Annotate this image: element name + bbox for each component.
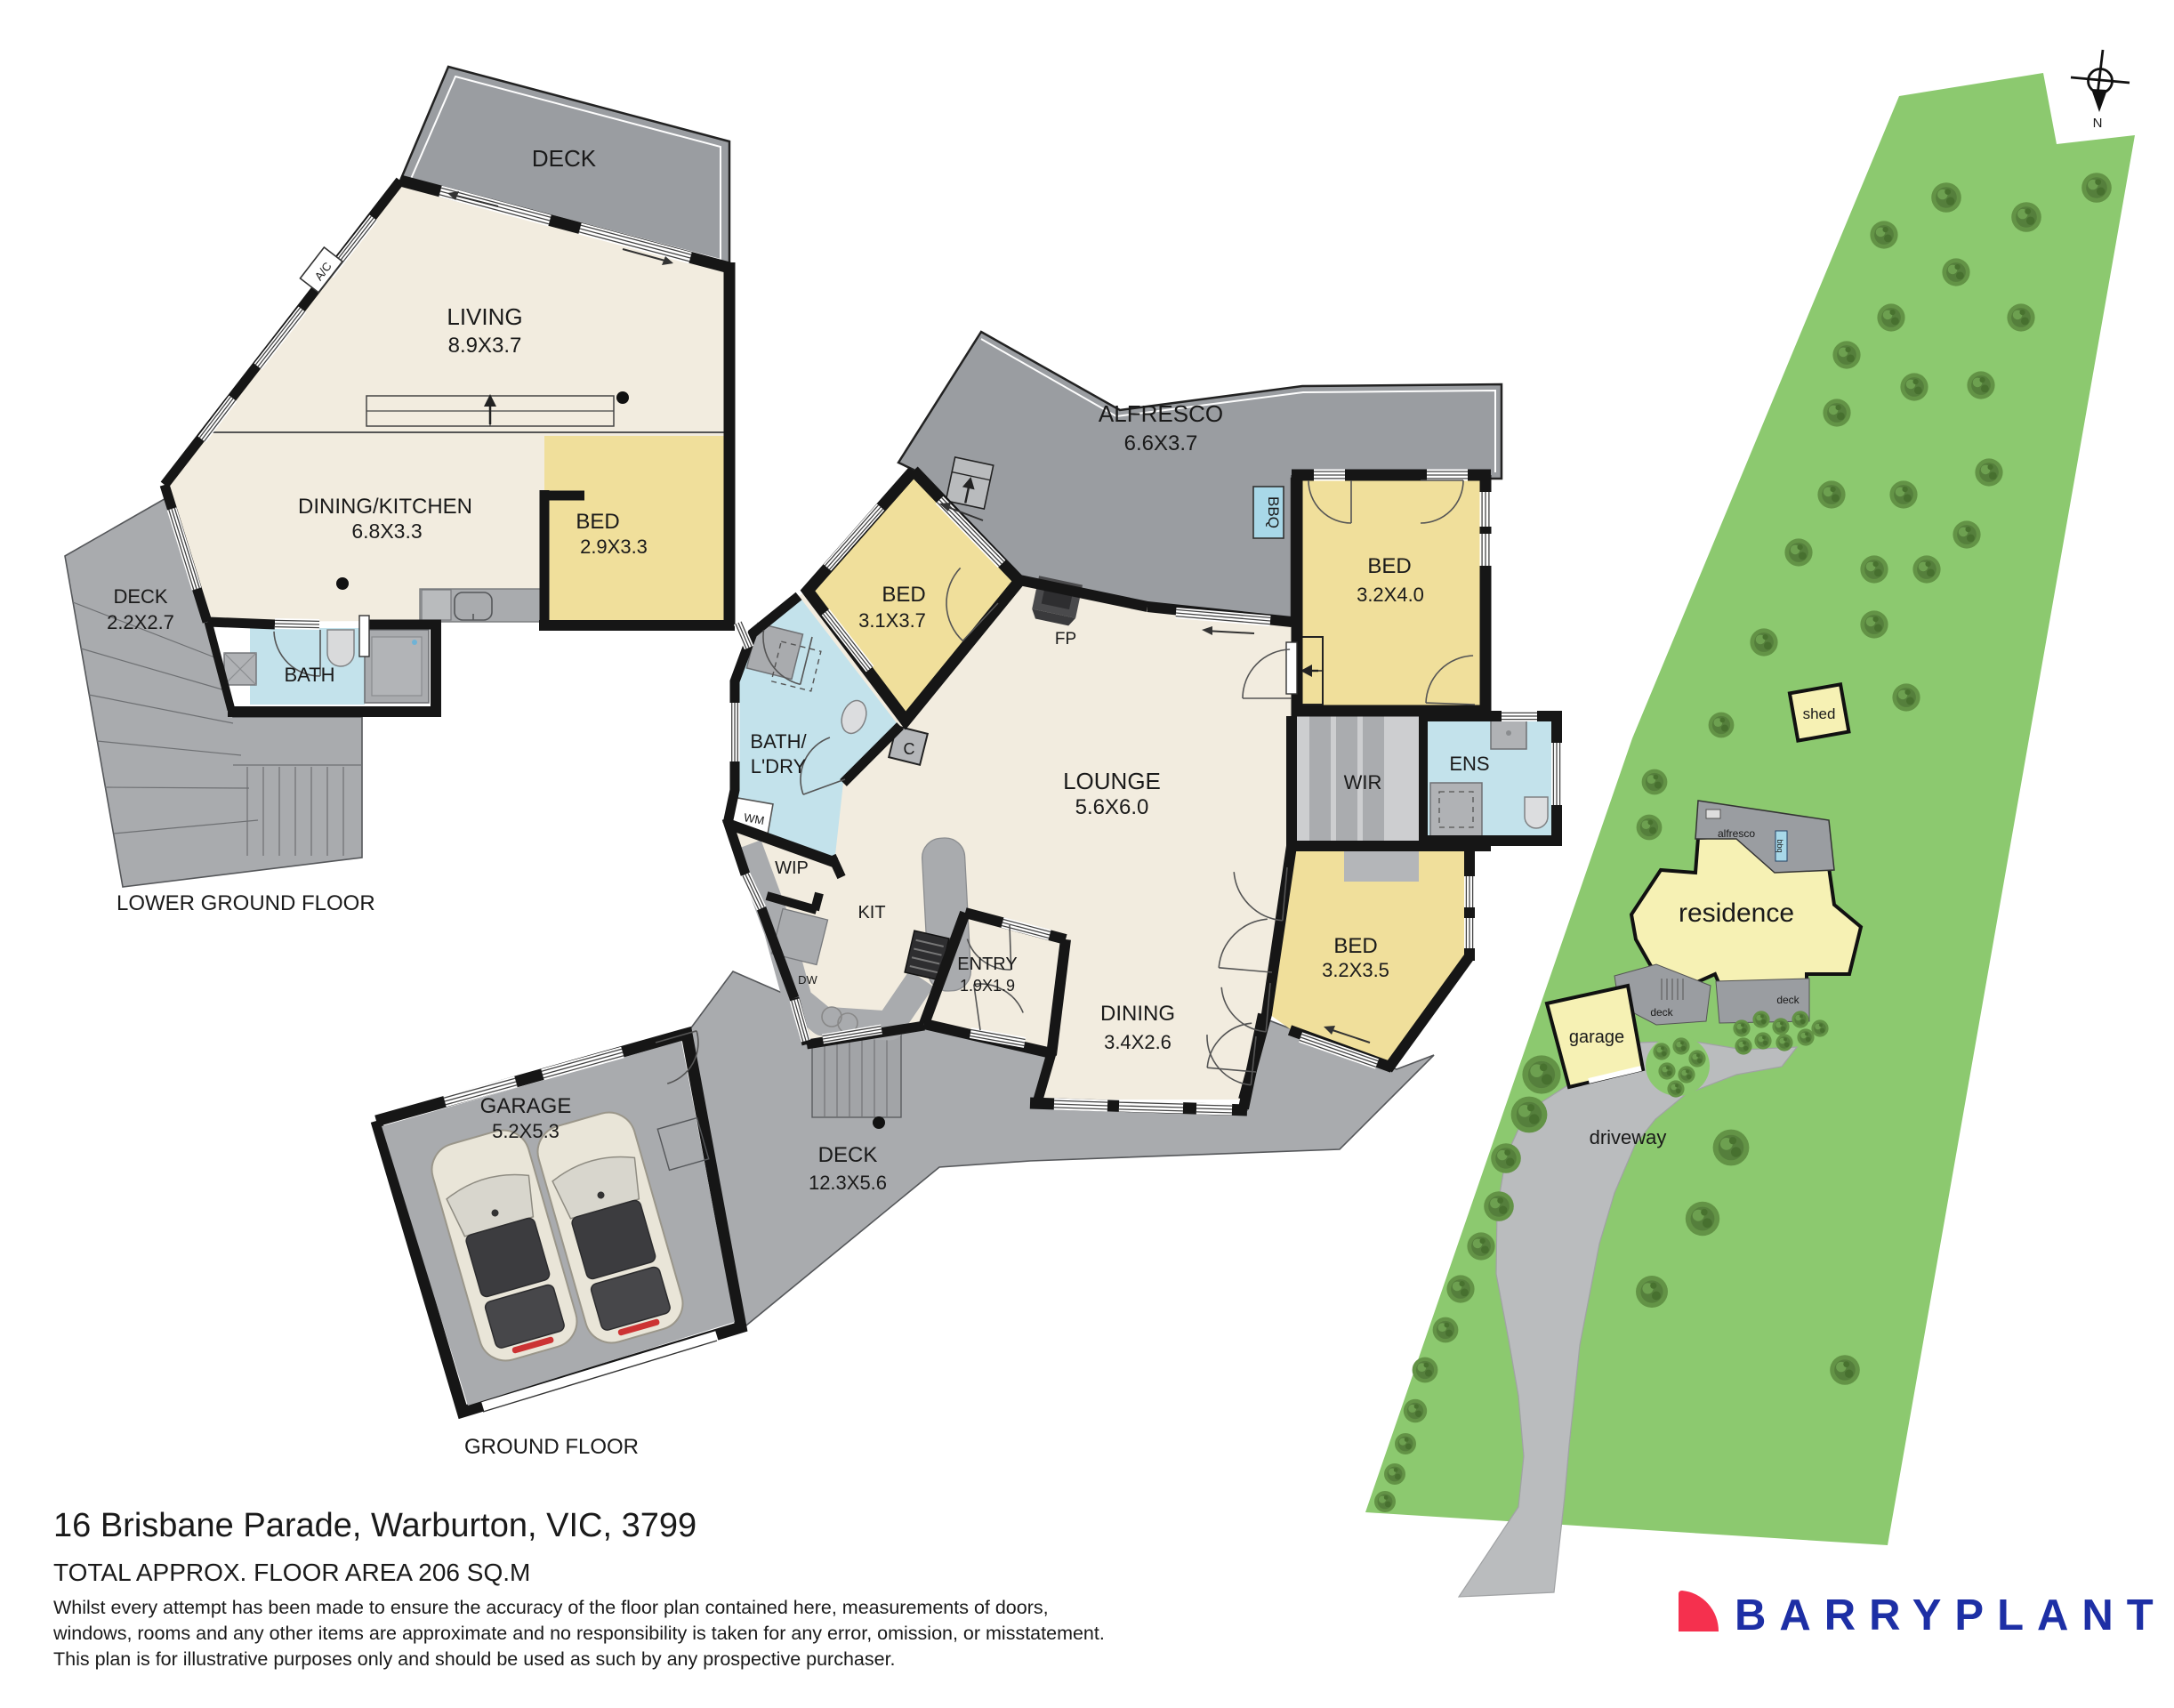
svg-text:1.9X1.9: 1.9X1.9: [960, 977, 1015, 995]
svg-text:3.4X2.6: 3.4X2.6: [1104, 1031, 1172, 1053]
svg-text:deck: deck: [1650, 1006, 1673, 1019]
svg-text:6.6X3.7: 6.6X3.7: [1124, 431, 1198, 455]
svg-text:C: C: [904, 740, 915, 758]
svg-text:DECK: DECK: [818, 1143, 878, 1167]
svg-text:BATH: BATH: [284, 664, 334, 686]
svg-text:BED: BED: [576, 510, 619, 534]
svg-text:bbq: bbq: [1775, 839, 1784, 852]
svg-text:GARAGE: GARAGE: [480, 1094, 572, 1118]
svg-text:WIP: WIP: [775, 858, 809, 878]
svg-text:BED: BED: [882, 583, 925, 607]
svg-text:residence: residence: [1679, 898, 1794, 928]
svg-text:3.1X3.7: 3.1X3.7: [858, 609, 926, 632]
svg-text:6.8X3.3: 6.8X3.3: [351, 520, 422, 543]
svg-text:12.3X5.6: 12.3X5.6: [809, 1172, 887, 1194]
svg-text:shed: shed: [1803, 705, 1836, 722]
svg-text:Whilst every attempt has been: Whilst every attempt has been made to en…: [53, 1597, 1049, 1618]
svg-text:deck: deck: [1776, 994, 1800, 1006]
svg-text:LIVING: LIVING: [447, 303, 522, 330]
svg-text:3.2X4.0: 3.2X4.0: [1357, 584, 1424, 606]
svg-text:TOTAL APPROX. FLOOR AREA 206 S: TOTAL APPROX. FLOOR AREA 206 SQ.M: [53, 1559, 530, 1586]
svg-text:N: N: [2093, 116, 2103, 131]
svg-text:5.6X6.0: 5.6X6.0: [1075, 795, 1149, 819]
svg-text:LOUNGE: LOUNGE: [1063, 768, 1161, 794]
svg-text:BED: BED: [1367, 554, 1411, 578]
svg-text:2.9X3.3: 2.9X3.3: [580, 536, 648, 558]
svg-text:8.9X3.7: 8.9X3.7: [448, 334, 522, 358]
svg-text:garage: garage: [1569, 1027, 1624, 1047]
svg-text:L'DRY: L'DRY: [751, 755, 807, 777]
svg-text:BBQ: BBQ: [1265, 496, 1282, 528]
svg-text:KIT: KIT: [858, 903, 885, 922]
svg-text:DINING: DINING: [1100, 1002, 1175, 1026]
svg-text:BATH/: BATH/: [750, 730, 807, 753]
svg-text:3.2X3.5: 3.2X3.5: [1322, 959, 1389, 981]
svg-text:DW: DW: [798, 973, 817, 987]
svg-text:WIR: WIR: [1344, 771, 1382, 794]
svg-text:FP: FP: [1055, 630, 1076, 649]
svg-text:2.2X2.7: 2.2X2.7: [107, 611, 174, 633]
svg-text:ALFRESCO: ALFRESCO: [1099, 400, 1223, 427]
svg-text:DECK: DECK: [113, 585, 167, 608]
svg-text:GROUND FLOOR: GROUND FLOOR: [464, 1435, 639, 1459]
svg-text:DINING/KITCHEN: DINING/KITCHEN: [298, 495, 472, 519]
svg-text:BED: BED: [1333, 934, 1377, 958]
svg-text:This plan is for illustrative: This plan is for illustrative purposes o…: [53, 1648, 896, 1670]
svg-text:5.2X5.3: 5.2X5.3: [492, 1120, 560, 1142]
svg-text:windows, rooms and any other i: windows, rooms and any other items are a…: [52, 1623, 1105, 1644]
svg-text:alfresco: alfresco: [1718, 827, 1755, 840]
svg-text:driveway: driveway: [1590, 1126, 1667, 1148]
svg-text:LOWER GROUND FLOOR: LOWER GROUND FLOOR: [117, 891, 375, 915]
svg-text:BARRYPLANT: BARRYPLANT: [1735, 1591, 2167, 1640]
svg-text:ENS: ENS: [1449, 753, 1489, 775]
svg-text:ENTRY: ENTRY: [957, 955, 1017, 974]
svg-text:DECK: DECK: [532, 145, 597, 172]
svg-text:16 Brisbane Parade, Warburton,: 16 Brisbane Parade, Warburton, VIC, 3799: [53, 1507, 696, 1544]
